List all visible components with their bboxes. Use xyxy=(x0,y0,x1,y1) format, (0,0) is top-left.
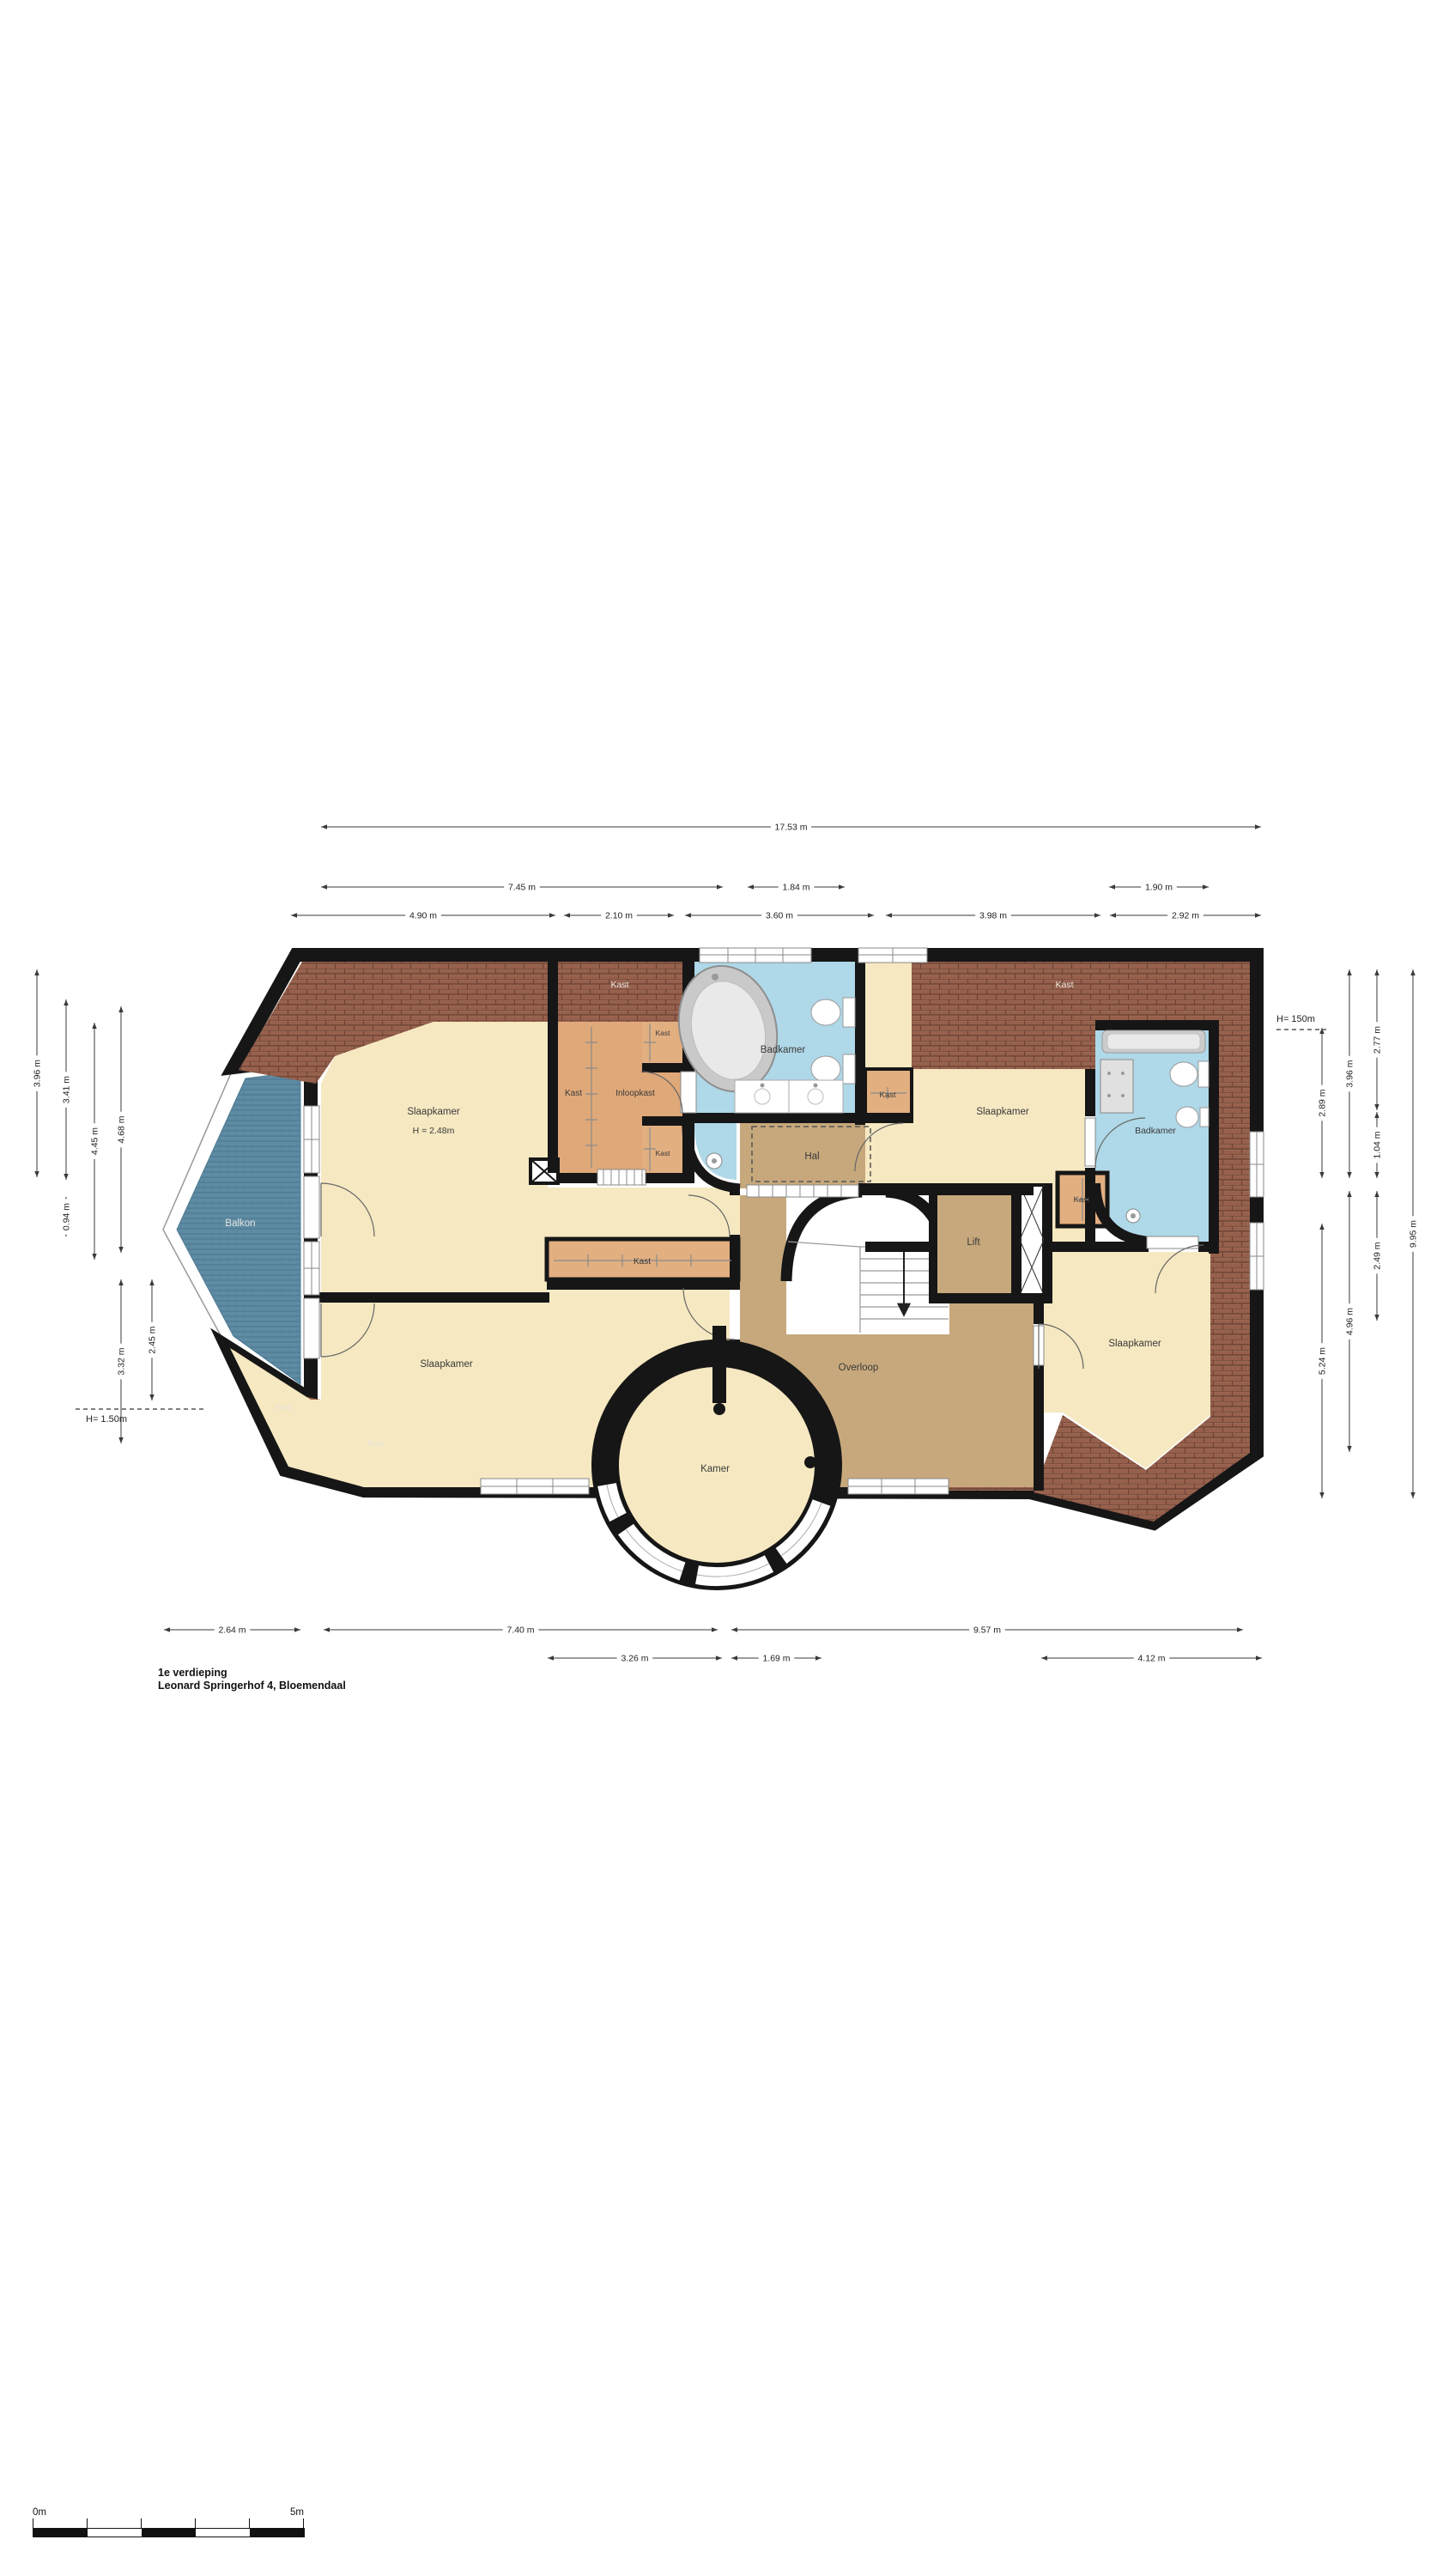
room-label: Kast xyxy=(565,1089,582,1098)
floorplan-svg: 17.53 m7.45 m1.84 m1.90 m4.90 m2.10 m3.6… xyxy=(0,0,1449,2576)
tower-post xyxy=(713,1403,725,1415)
toilet-icon xyxy=(811,998,855,1027)
door-bedroom-c xyxy=(1085,1118,1095,1166)
dimension-label: 4.45 m xyxy=(90,1127,100,1155)
window-balcony-1 xyxy=(304,1106,319,1173)
room-label: Kast xyxy=(1055,980,1073,990)
bathtub-right-icon xyxy=(1102,1030,1205,1053)
room-label: Kast xyxy=(275,1403,291,1413)
room-label: Slaapkamer xyxy=(407,1107,460,1117)
dimension-label-group: 3.96 m xyxy=(32,1055,43,1091)
window-right-2 xyxy=(1250,1223,1264,1290)
scale-end-label: 5m xyxy=(290,2507,304,2518)
room-label: Kamer xyxy=(700,1464,730,1474)
floor-title: 1e verdieping xyxy=(158,1667,346,1680)
room-label: Kast xyxy=(879,1091,895,1100)
lift-shaft xyxy=(1020,1185,1044,1295)
title-block: 1e verdieping Leonard Springerhof 4, Blo… xyxy=(158,1667,346,1692)
dimension-label: 2.45 m xyxy=(148,1326,158,1353)
window-top-2 xyxy=(858,948,927,963)
room-label: Kast xyxy=(610,980,628,990)
dimension-label-group: 2.49 m xyxy=(1372,1238,1383,1274)
dimension-label: 9.57 m xyxy=(973,1625,1001,1636)
dimension-label: 4.90 m xyxy=(409,911,437,921)
dimension-label: 2.49 m xyxy=(1373,1242,1383,1269)
dimension-label: 7.40 m xyxy=(506,1625,534,1636)
dimension-label-group: 2.77 m xyxy=(1372,1022,1383,1058)
toilet-icon xyxy=(1170,1061,1209,1087)
lift xyxy=(937,1183,1044,1298)
window-top-1 xyxy=(700,948,811,963)
dimension-label: 1.84 m xyxy=(782,883,809,893)
door-inloopkast xyxy=(681,1072,696,1113)
scale-bar: 0m 5m xyxy=(33,2507,304,2537)
dimension-label-group: 3.32 m xyxy=(116,1344,127,1380)
room-label: Kast xyxy=(367,1439,384,1449)
dimension-label: 3.32 m xyxy=(117,1347,127,1375)
dimension-label-group: 0.94 m xyxy=(61,1199,72,1235)
dimension-label-group: 1.04 m xyxy=(1372,1127,1383,1163)
shower-icon xyxy=(1100,1060,1133,1113)
room-label: Hal xyxy=(804,1151,819,1162)
dimension-label: 7.45 m xyxy=(508,883,536,893)
opening-hal xyxy=(747,1185,858,1197)
room-label: Kast xyxy=(655,1029,670,1037)
address-title: Leonard Springerhof 4, Bloemendaal xyxy=(158,1680,346,1692)
opening-corridor xyxy=(597,1170,646,1185)
door-balcony-1 xyxy=(304,1176,319,1238)
tower-wall-stub xyxy=(712,1326,726,1403)
dimension-label: 3.60 m xyxy=(766,911,793,921)
dimension-label: 2.10 m xyxy=(605,911,633,921)
room-label: Badkamer xyxy=(1135,1126,1176,1136)
room-label: Balkon xyxy=(225,1218,255,1229)
dimension-label-group: 3.96 m xyxy=(1344,1056,1355,1092)
door-balcony-2 xyxy=(304,1298,319,1358)
scale-segments xyxy=(33,2528,305,2537)
dimension-label: 2.89 m xyxy=(1318,1089,1328,1116)
toilet-icon xyxy=(811,1054,855,1084)
scale-ticks xyxy=(33,2518,304,2528)
room-label: Slaapkamer xyxy=(1108,1339,1161,1349)
dimension-label-group: 2.45 m xyxy=(147,1322,158,1358)
dimension-label: 3.96 m xyxy=(33,1060,43,1087)
wc-icon xyxy=(706,1153,722,1169)
height-annotation-label: H= 150m xyxy=(1276,1014,1315,1024)
dimension-label-group: 4.45 m xyxy=(89,1123,100,1159)
dimension-label: 4.68 m xyxy=(117,1115,127,1143)
bedroom-top-left-floor xyxy=(321,1022,548,1292)
dimension-label: 0.94 m xyxy=(62,1203,72,1230)
window-balcony-2 xyxy=(304,1242,319,1295)
window-bottom-2 xyxy=(848,1479,949,1494)
floorplan-page: 17.53 m7.45 m1.84 m1.90 m4.90 m2.10 m3.6… xyxy=(0,0,1449,2576)
dimension-label: 3.98 m xyxy=(979,911,1007,921)
window-bottom-1 xyxy=(481,1479,589,1494)
dimension-label: 3.41 m xyxy=(62,1076,72,1103)
dimension-label-group: 3.41 m xyxy=(61,1072,72,1108)
dimension-label: 2.64 m xyxy=(218,1625,246,1636)
height-annotation-label: H= 1.50m xyxy=(86,1414,127,1425)
dimension-label-group: 2.89 m xyxy=(1317,1085,1328,1121)
room-label: Overloop xyxy=(839,1363,879,1373)
dimension-label: 4.12 m xyxy=(1137,1654,1165,1664)
washbasin-icon xyxy=(735,1080,843,1113)
dimension-label-group: 4.68 m xyxy=(116,1112,127,1148)
bidet-icon xyxy=(1176,1107,1209,1127)
dimension-label-group: 4.96 m xyxy=(1344,1303,1355,1340)
tower-post xyxy=(804,1456,816,1468)
room-label: Kast xyxy=(655,1149,670,1157)
dimension-label: 9.95 m xyxy=(1409,1220,1419,1248)
dimension-label: 2.92 m xyxy=(1172,911,1199,921)
dimension-label: 1.90 m xyxy=(1145,883,1173,893)
dimension-label-group: 9.95 m xyxy=(1408,1216,1419,1252)
dimension-label: 4.96 m xyxy=(1345,1308,1355,1335)
room-label: Badkamer xyxy=(761,1045,806,1055)
dimension-label: 1.69 m xyxy=(762,1654,790,1664)
dimension-label: 5.24 m xyxy=(1318,1347,1328,1375)
dimension-label: 17.53 m xyxy=(775,823,808,833)
room-label: Kast xyxy=(634,1257,651,1267)
dimension-label: 3.26 m xyxy=(621,1654,648,1664)
room-label: Slaapkamer xyxy=(420,1359,473,1370)
window-right-1 xyxy=(1250,1132,1264,1197)
room-label: Lift xyxy=(967,1237,980,1248)
dimension-label: 2.77 m xyxy=(1373,1026,1383,1054)
wc-icon xyxy=(1126,1209,1140,1223)
bedroom-top-left-strip xyxy=(525,1188,740,1241)
scale-start-label: 0m xyxy=(33,2507,46,2518)
dimension-label: 1.04 m xyxy=(1373,1131,1383,1158)
stairwell xyxy=(786,1190,949,1334)
room-label: Slaapkamer xyxy=(976,1107,1029,1117)
dimension-label: 3.96 m xyxy=(1345,1060,1355,1087)
dimension-label-group: 5.24 m xyxy=(1317,1343,1328,1379)
room-label: H = 2.48m xyxy=(413,1126,455,1136)
room-label: Kast xyxy=(1073,1195,1089,1205)
room-label: Inloopkast xyxy=(615,1089,655,1098)
